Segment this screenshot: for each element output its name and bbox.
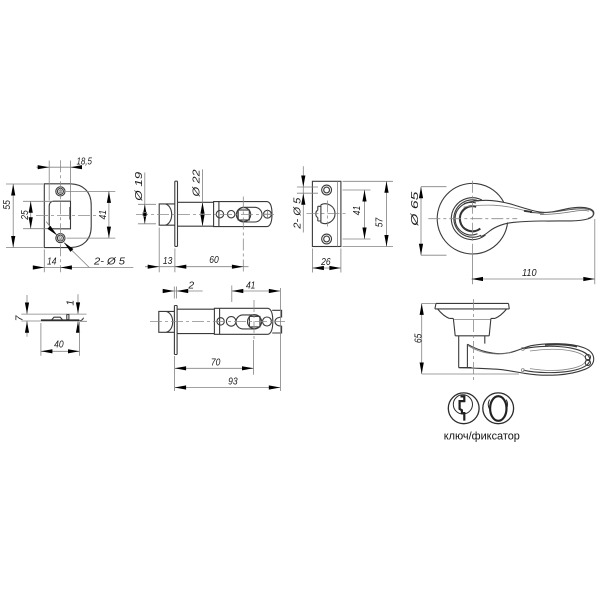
svg-text:2- Ø 5: 2- Ø 5 [292,197,303,229]
svg-text:65: 65 [413,333,424,343]
svg-text:57: 57 [375,217,386,228]
svg-text:25: 25 [20,210,31,221]
svg-text:Ø 19: Ø 19 [134,171,145,202]
svg-text:ключ/фиксатор: ключ/фиксатор [444,430,520,442]
svg-text:41: 41 [352,206,363,216]
svg-text:41: 41 [246,280,256,291]
svg-text:26: 26 [320,257,331,268]
svg-text:110: 110 [522,268,537,279]
svg-text:41: 41 [98,210,109,220]
svg-text:70: 70 [211,358,221,369]
svg-text:93: 93 [228,377,238,388]
svg-text:55: 55 [2,200,13,210]
svg-text:40: 40 [54,340,64,351]
svg-text:60: 60 [209,255,219,266]
svg-text:Ø 22: Ø 22 [192,169,203,198]
svg-text:1: 1 [65,300,76,306]
svg-text:2- Ø 5: 2- Ø 5 [93,256,125,267]
svg-text:2: 2 [187,280,194,291]
svg-text:18,5: 18,5 [76,156,92,167]
svg-text:14: 14 [47,256,57,267]
svg-text:13: 13 [163,256,173,267]
svg-text:Ø 65: Ø 65 [410,191,421,227]
